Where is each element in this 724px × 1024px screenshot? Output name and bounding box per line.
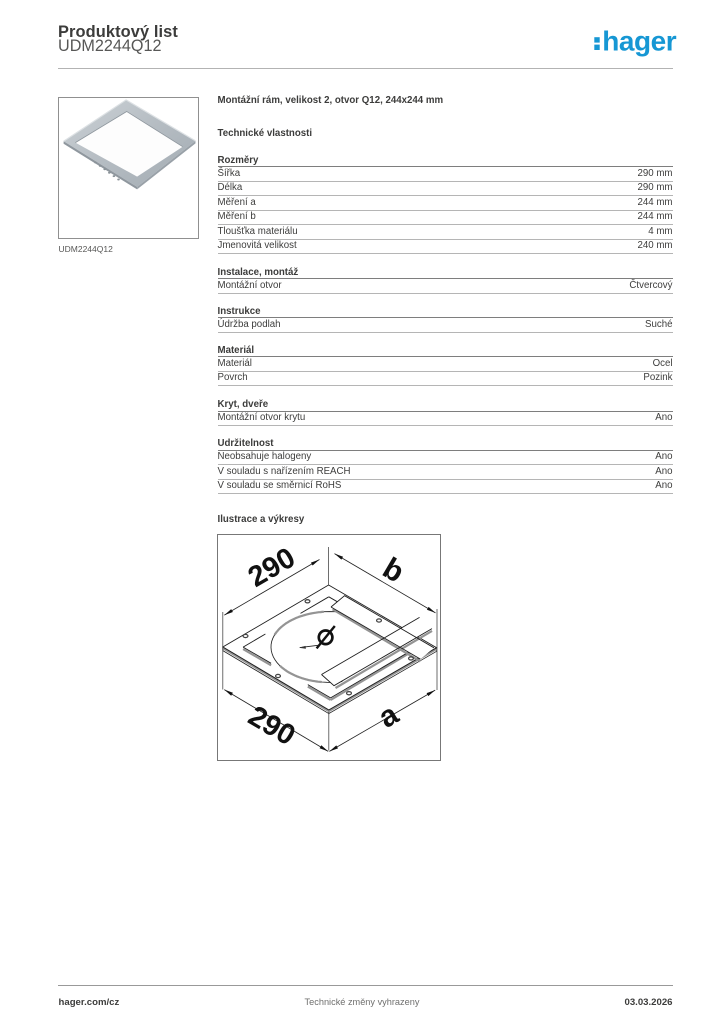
svg-text:290: 290 xyxy=(243,700,301,752)
svg-text:b: b xyxy=(377,552,409,590)
svg-text:a: a xyxy=(373,698,404,735)
svg-text:290: 290 xyxy=(243,542,301,594)
